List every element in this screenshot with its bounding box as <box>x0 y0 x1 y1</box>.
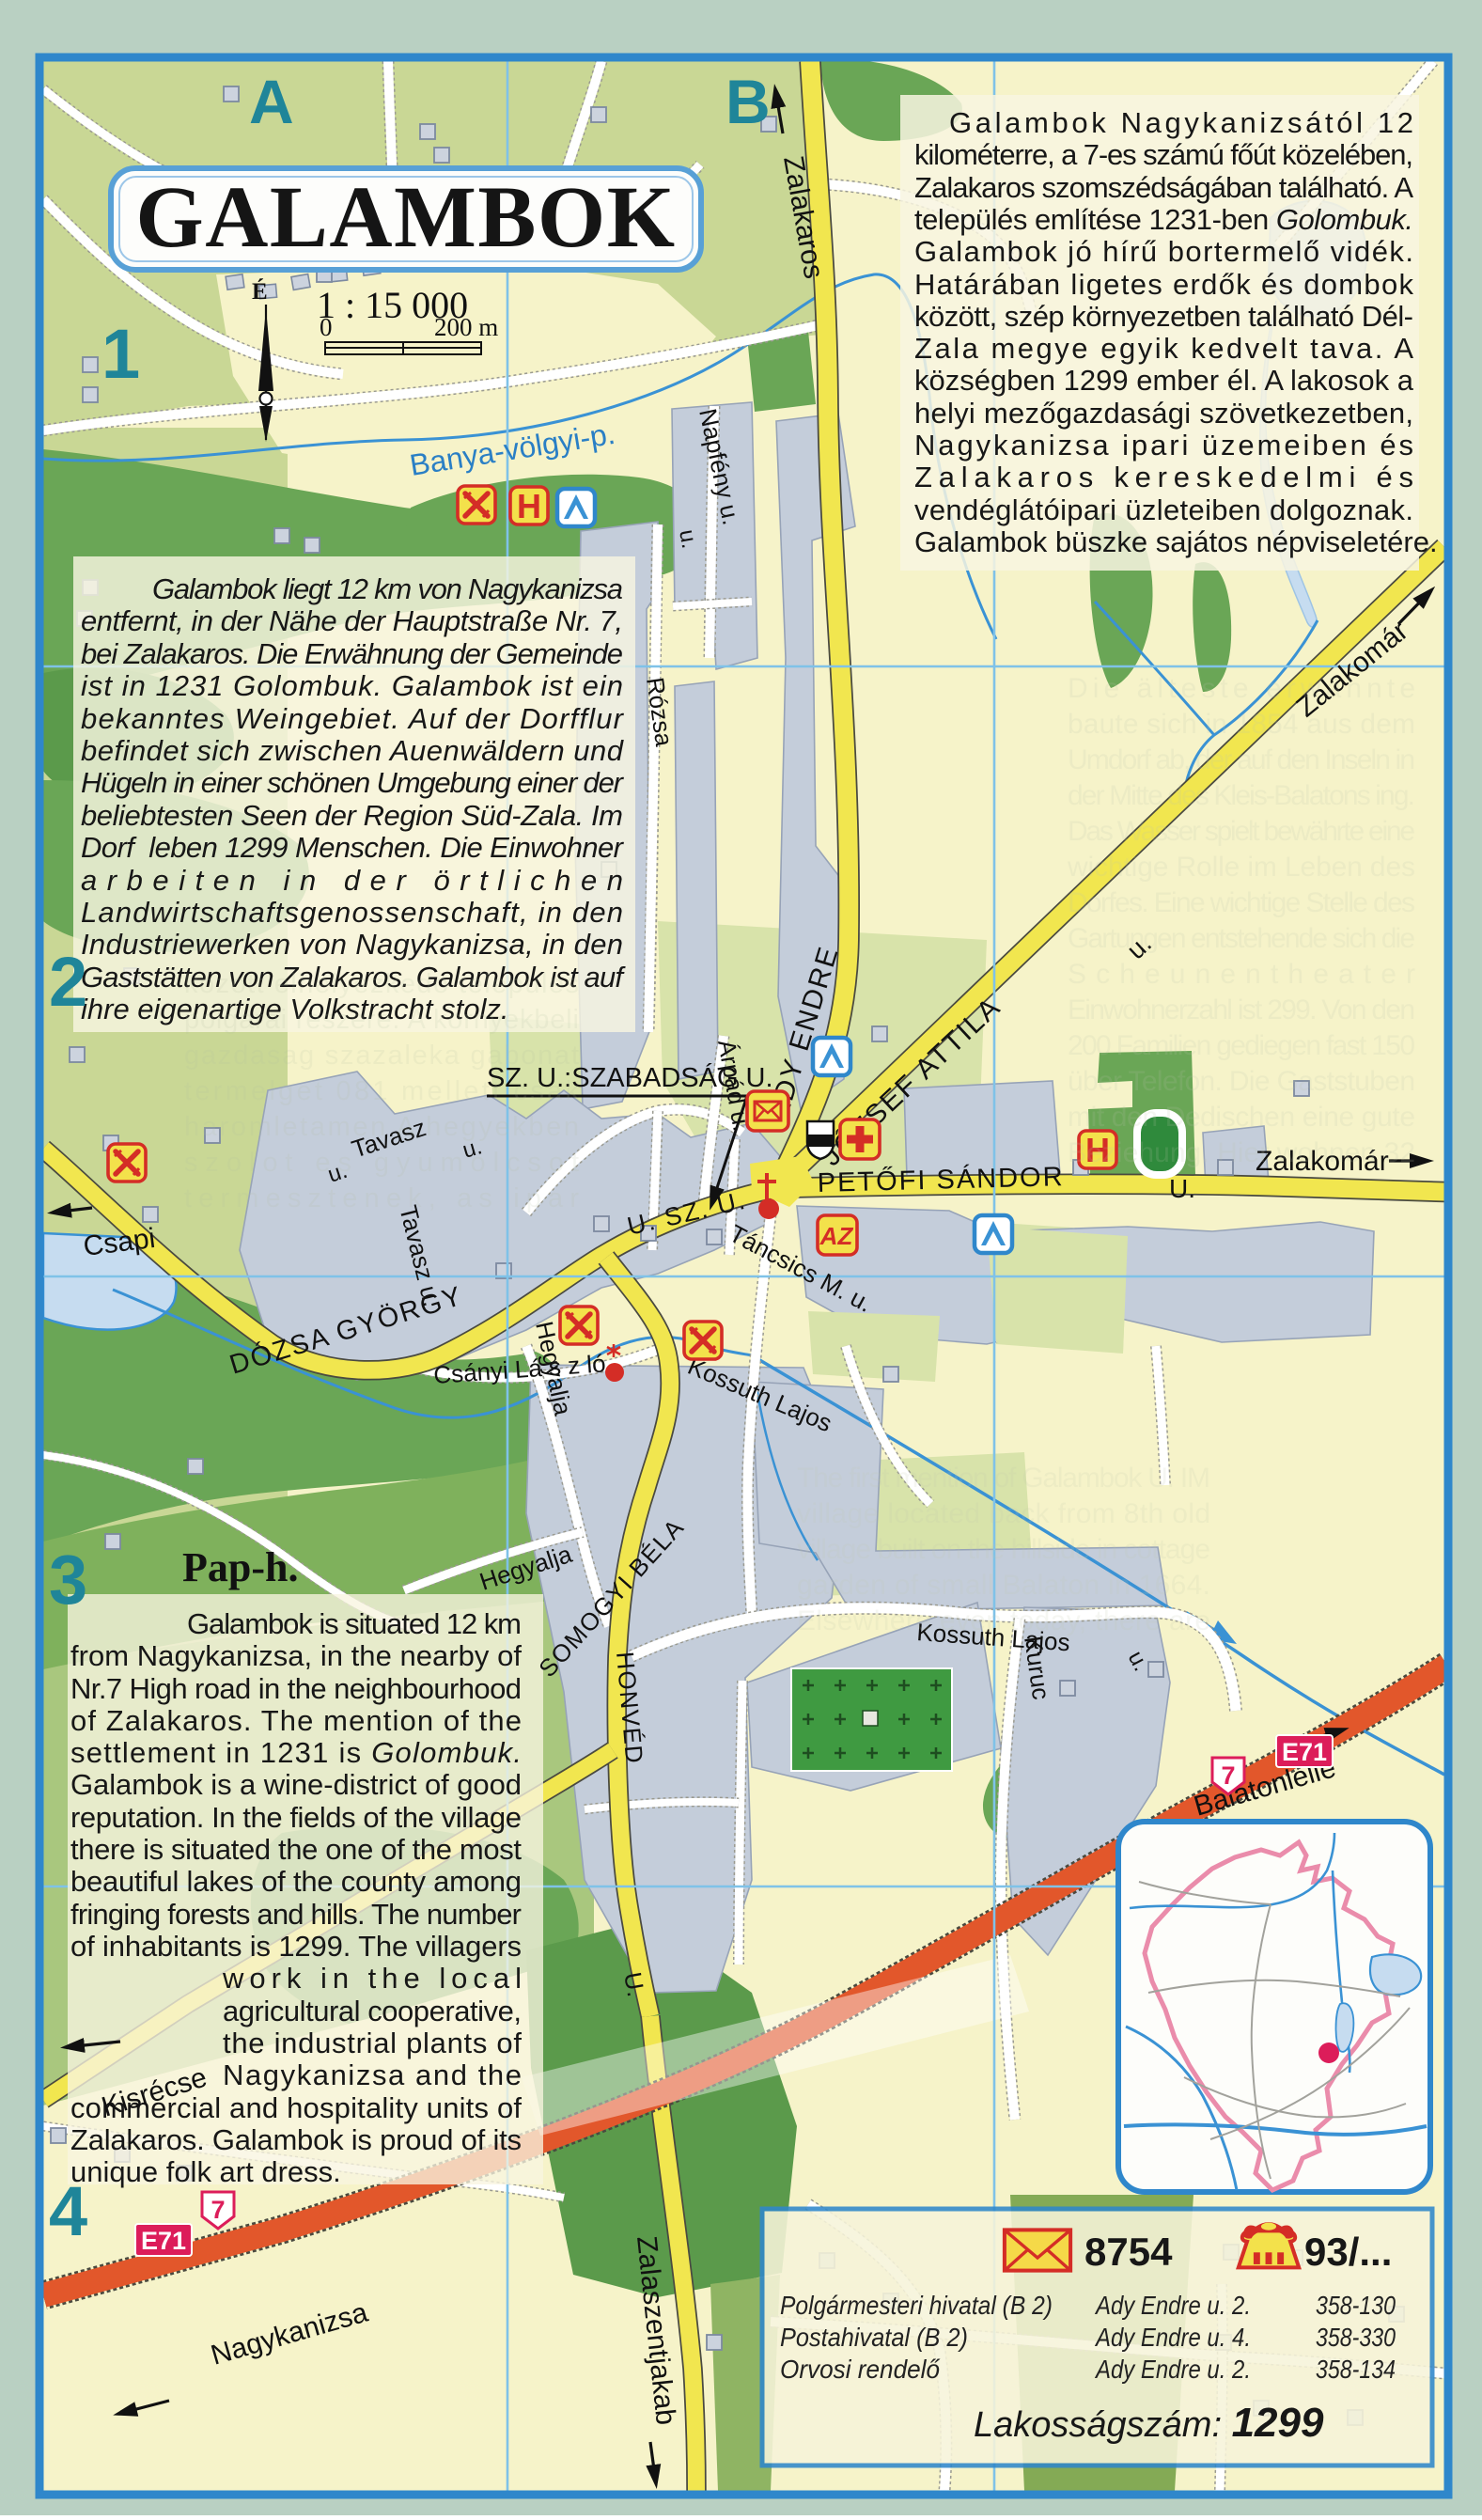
svg-text:PETŐFI SÁNDOR: PETŐFI SÁNDOR <box>817 1161 1065 1198</box>
svg-text:Industriewerken von Nagykanizs: Industriewerken von Nagykanizsa, in den <box>81 928 623 961</box>
svg-text:from Nagykanizsa, in the nearb: from Nagykanizsa, in the nearby of <box>70 1639 522 1672</box>
svg-text:termelget 081 mellett csak: termelget 081 mellett csak <box>184 1076 580 1106</box>
svg-text:village located back from 8th: village located back from 8th old <box>797 1498 1210 1529</box>
svg-text:beautiful lakes of the county: beautiful lakes of the county among <box>70 1865 522 1898</box>
svg-text:Ady Endre u. 2.: Ady Endre u. 2. <box>1094 2291 1251 2320</box>
svg-text:E71: E71 <box>141 2227 186 2255</box>
svg-text:Umdorf ab, der auf den Inseln: Umdorf ab, der auf den Inseln in <box>1068 744 1415 775</box>
svg-text:unique folk art dress.: unique folk art dress. <box>70 2155 341 2188</box>
svg-text:helyi mezőgazdasági szövetkeze: helyi mezőgazdasági szövetkezetben, <box>914 397 1413 430</box>
svg-text:bekanntes Weingebiet. Auf der: bekanntes Weingebiet. Auf der Dorfflur <box>81 702 625 735</box>
svg-text:358-330: 358-330 <box>1316 2323 1396 2352</box>
svg-text:Pap-h.: Pap-h. <box>182 1544 298 1590</box>
svg-text:U.: U. <box>618 1970 650 1999</box>
svg-text:kozott elhelyezkedo telepules: kozott elhelyezkedo telepules <box>184 969 579 999</box>
svg-text:Elsewhere even today, there ar: Elsewhere even today, there are <box>797 1605 1210 1636</box>
svg-text:the industrial plants of: the industrial plants of <box>223 2027 522 2059</box>
svg-text:Ady Endre u. 4.: Ady Endre u. 4. <box>1094 2323 1251 2352</box>
svg-text:Galambok jó hírű bortermelő vi: Galambok jó hírű bortermelő vidék. <box>914 235 1413 268</box>
svg-text:U.: U. <box>1169 1174 1195 1203</box>
svg-text:4: 4 <box>49 2172 87 2250</box>
svg-text:E71: E71 <box>1282 1738 1327 1766</box>
svg-text:polgarai reszere. A kornyekbel: polgarai reszere. A kornyekbeli <box>184 1005 579 1035</box>
svg-text:Zalakaros kereskedelmi és: Zalakaros kereskedelmi és <box>914 461 1413 493</box>
svg-text:GALAMBOK: GALAMBOK <box>135 169 676 266</box>
svg-text:Polgármesteri hivatal (B 2): Polgármesteri hivatal (B 2) <box>780 2291 1053 2320</box>
svg-text:vendéglátóipari üzleteiben dol: vendéglátóipari üzleteiben dolgoznak. <box>914 493 1413 526</box>
svg-text:A: A <box>249 67 294 136</box>
svg-text:village built on the hillside: village built on the hillside in cottage <box>797 1534 1210 1565</box>
svg-text:Einwohnerzahl ist 299. Von den: Einwohnerzahl ist 299. Von den <box>1068 994 1415 1025</box>
svg-text:befindet sich zwischen Auenwäl: befindet sich zwischen Auenwäldern und <box>81 734 625 767</box>
svg-text:fringing forests and hills. Th: fringing forests and hills. The number <box>70 1898 522 1931</box>
svg-text:település említése 1231-ben Go: település említése 1231-ben Golombuk. <box>914 203 1413 236</box>
svg-text:Nagykanizsa ipari üzemeiben és: Nagykanizsa ipari üzemeiben és <box>914 429 1413 462</box>
svg-text:Postahivatal (B 2): Postahivatal (B 2) <box>780 2323 968 2352</box>
svg-text:Galambok is situated 12 km: Galambok is situated 12 km <box>187 1607 522 1640</box>
svg-text:7: 7 <box>211 2196 225 2224</box>
svg-text:bei Zalakaros. Die Erwähnung d: bei Zalakaros. Die Erwähnung der Gemeind… <box>81 637 623 670</box>
svg-text:garden of small Balaton in 166: garden of small Balaton in 1664. <box>797 1570 1210 1601</box>
svg-text:3: 3 <box>49 1541 87 1619</box>
svg-text:entfernt, in der Nähe der Haup: entfernt, in der Nähe der Hauptstraße Nr… <box>81 604 623 637</box>
svg-text:Landwirtschaftsgenossenschaft,: Landwirtschaftsgenossenschaft, in den <box>81 896 623 929</box>
svg-text:1: 1 <box>101 315 140 393</box>
svg-text:Határában ligetes erdők és dom: Határában ligetes erdők és dombok <box>914 268 1414 301</box>
svg-text:arbeiten in der örtlichen: arbeiten in der örtlichen <box>81 864 623 897</box>
svg-text:Zalakaros. Galambok is proud o: Zalakaros. Galambok is proud of its <box>70 2123 522 2156</box>
svg-text:über Telefon. Die Gaststuben: über Telefon. Die Gaststuben <box>1068 1066 1415 1097</box>
svg-text:B: B <box>725 67 771 136</box>
svg-text:agricultural cooperative,: agricultural cooperative, <box>223 1995 522 2027</box>
svg-text:93/...: 93/... <box>1304 2230 1392 2274</box>
svg-text:of inhabitants is 1299. The vi: of inhabitants is 1299. The villagers <box>70 1930 522 1963</box>
svg-text:községben 1299 ember él. A lak: községben 1299 ember él. A lakosok a <box>914 364 1414 397</box>
svg-text:8754: 8754 <box>1084 2230 1173 2274</box>
svg-text:0: 0 <box>320 313 333 341</box>
svg-text:mit den Dedischen eine gute: mit den Dedischen eine gute <box>1068 1102 1415 1133</box>
svg-text:2: 2 <box>49 943 87 1021</box>
svg-text:wichtige Rolle im Leben des: wichtige Rolle im Leben des <box>1067 852 1415 883</box>
svg-text:200 m: 200 m <box>434 313 498 341</box>
svg-text:reputation. In the fields of t: reputation. In the fields of the village <box>70 1801 522 1834</box>
svg-text:200 Familien gediegen fast 150: 200 Familien gediegen fast 150 <box>1068 1030 1415 1061</box>
svg-text:The first mention of Galambok: The first mention of Galambok U. IM <box>797 1463 1210 1494</box>
svg-text:Beziehung. Hier wohnen 32: Beziehung. Hier wohnen 32 <box>1068 1137 1415 1168</box>
svg-text:ist in 1231 Golombuk. Galambok: ist in 1231 Golombuk. Galambok ist ein <box>81 669 623 702</box>
svg-text:settlement in 1231 is Golombuk: settlement in 1231 is Golombuk. <box>70 1736 522 1769</box>
svg-text:358-130: 358-130 <box>1316 2291 1396 2320</box>
svg-text:7: 7 <box>1221 1761 1235 1790</box>
svg-text:der Mitte des Kleis-Balatons i: der Mitte des Kleis-Balatons ing. <box>1068 780 1415 811</box>
svg-text:Galambok liegt 12 km von Nagyk: Galambok liegt 12 km von Nagykanizsa <box>152 572 623 605</box>
svg-text:kilométerre, a 7-es számú főút: kilométerre, a 7-es számú főút közelében… <box>914 138 1413 171</box>
svg-text:there is situated the one of t: there is situated the one of the most <box>70 1833 522 1866</box>
svg-text:Zalakaros szomszédságában talá: Zalakaros szomszédságában található. A <box>914 171 1413 204</box>
svg-text:baute sich in 1854 aus dem: baute sich in 1854 aus dem <box>1068 709 1415 740</box>
svg-text:Gartungen entstehende sich die: Gartungen entstehende sich die <box>1068 923 1415 954</box>
svg-text:haromletamen A hegyekben: haromletamen A hegyekben <box>184 1112 579 1142</box>
svg-text:Dorf leben 1299 Menschen. Die: Dorf leben 1299 Menschen. Die Einwohner <box>81 831 625 864</box>
svg-text:S c h e u n e n t h e a t e r: S c h e u n e n t h e a t e r <box>1068 959 1415 990</box>
svg-text:Dorfes. Eine wichtige Stelle d: Dorfes. Eine wichtige Stelle des <box>1068 887 1415 918</box>
svg-text:Orvosi rendelő: Orvosi rendelő <box>780 2355 940 2384</box>
svg-text:Das Wasser spielt bewährte ein: Das Wasser spielt bewährte eine <box>1068 816 1415 847</box>
svg-text:Galambok is a wine-district of: Galambok is a wine-district of good <box>70 1768 522 1801</box>
svg-text:358-134: 358-134 <box>1316 2355 1396 2384</box>
svg-text:között, szép környezetben talá: között, szép környezetben található Dél- <box>914 300 1413 333</box>
svg-text:Lakosságszám: 1299: Lakosságszám: 1299 <box>974 2400 1324 2446</box>
svg-text:Galambok büszke sajátos népvis: Galambok büszke sajátos népviseletére. <box>914 525 1438 558</box>
svg-text:É: É <box>252 278 268 305</box>
svg-text:Nr.7 High road in the neighbou: Nr.7 High road in the neighbourhood <box>70 1672 522 1705</box>
svg-text:beliebtesten Seen der Region S: beliebtesten Seen der Region Süd-Zala. I… <box>81 799 623 832</box>
svg-text:Hügeln in einer schönen Umgebu: Hügeln in einer schönen Umgebung einer d… <box>81 766 625 799</box>
svg-text:Ady Endre u. 2.: Ady Endre u. 2. <box>1094 2355 1251 2384</box>
